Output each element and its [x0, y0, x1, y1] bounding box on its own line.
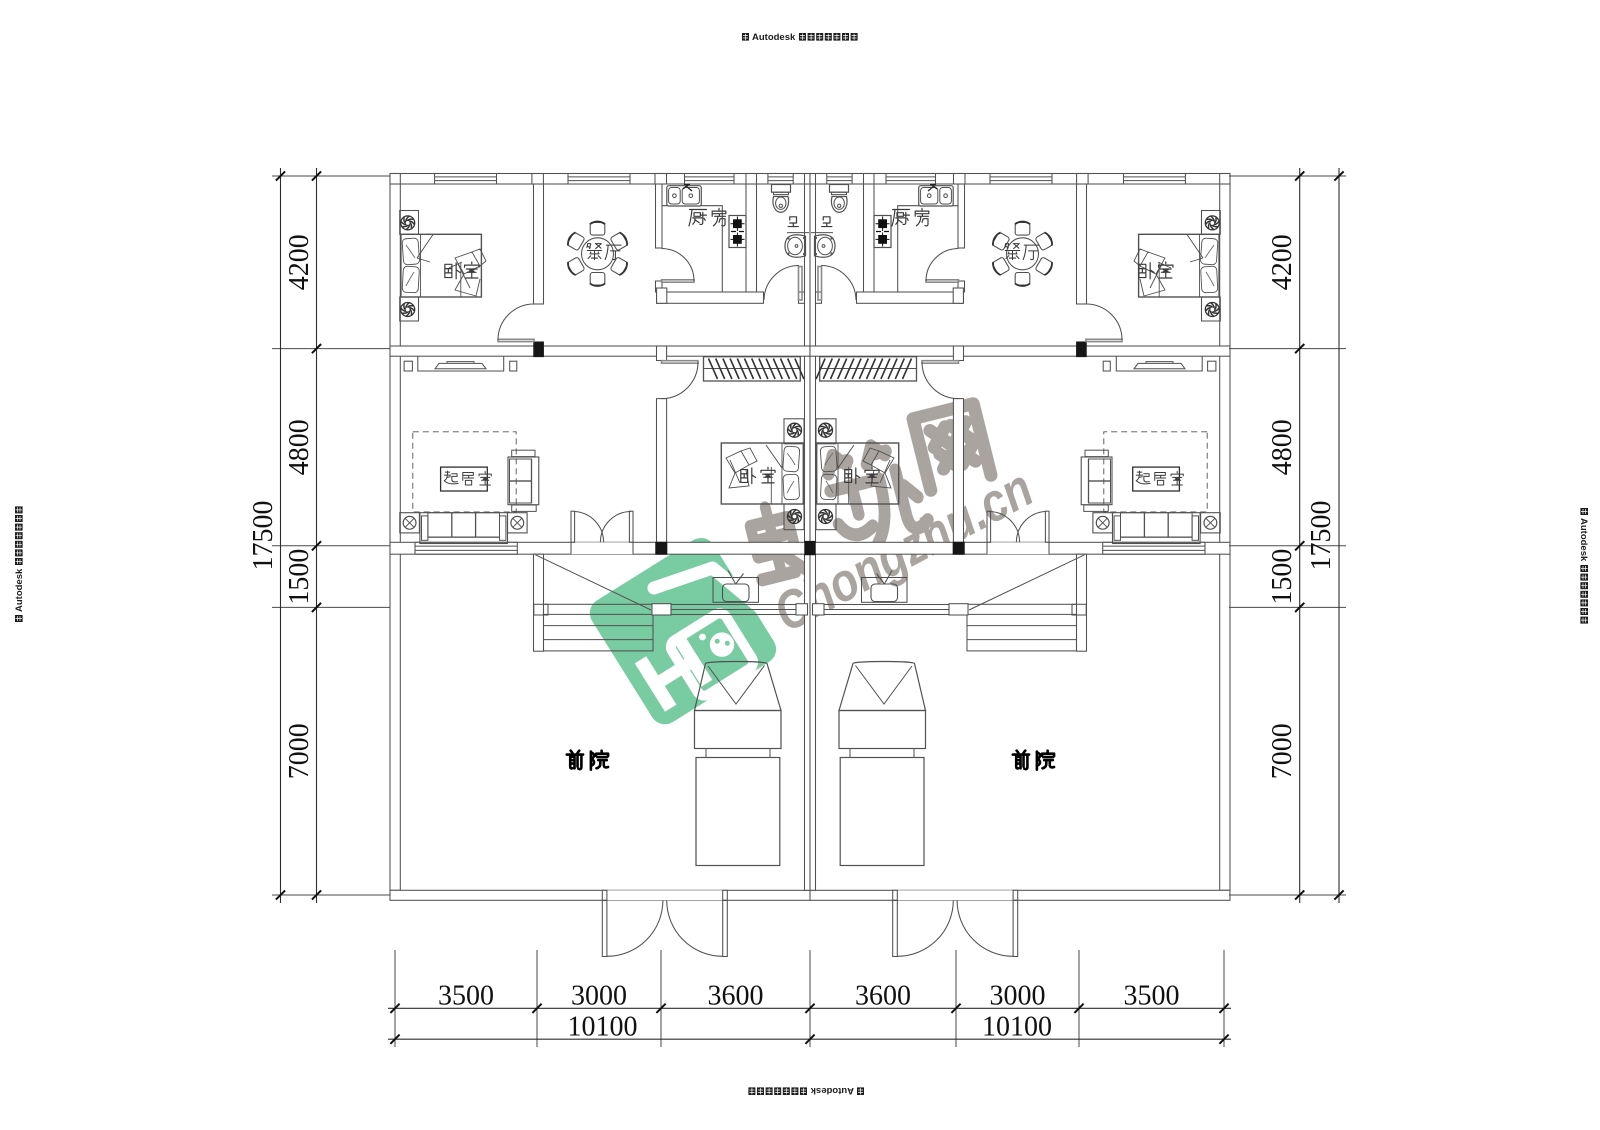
svg-text:1500: 1500 — [284, 549, 315, 605]
svg-text:Autodesk: Autodesk — [810, 1085, 854, 1096]
svg-text:4200: 4200 — [284, 234, 315, 290]
svg-text:1500: 1500 — [1267, 549, 1298, 605]
svg-text:4800: 4800 — [1267, 419, 1298, 475]
svg-text:3600: 3600 — [855, 981, 911, 1012]
svg-text:3000: 3000 — [990, 981, 1046, 1012]
svg-text:10100: 10100 — [568, 1012, 638, 1043]
svg-text:4800: 4800 — [284, 419, 315, 475]
svg-text:Autodesk: Autodesk — [752, 32, 796, 43]
svg-text:4200: 4200 — [1267, 234, 1298, 290]
svg-text:10100: 10100 — [982, 1012, 1052, 1043]
svg-text:Autodesk: Autodesk — [14, 568, 25, 612]
svg-text:3600: 3600 — [708, 981, 764, 1012]
svg-text:7000: 7000 — [284, 723, 315, 779]
svg-text:3000: 3000 — [571, 981, 627, 1012]
svg-text:3500: 3500 — [1124, 981, 1180, 1012]
svg-text:17500: 17500 — [1306, 501, 1337, 571]
svg-text:17500: 17500 — [248, 501, 279, 571]
svg-text:7000: 7000 — [1267, 723, 1298, 779]
svg-text:Autodesk: Autodesk — [1578, 518, 1589, 562]
svg-text:3500: 3500 — [438, 981, 494, 1012]
